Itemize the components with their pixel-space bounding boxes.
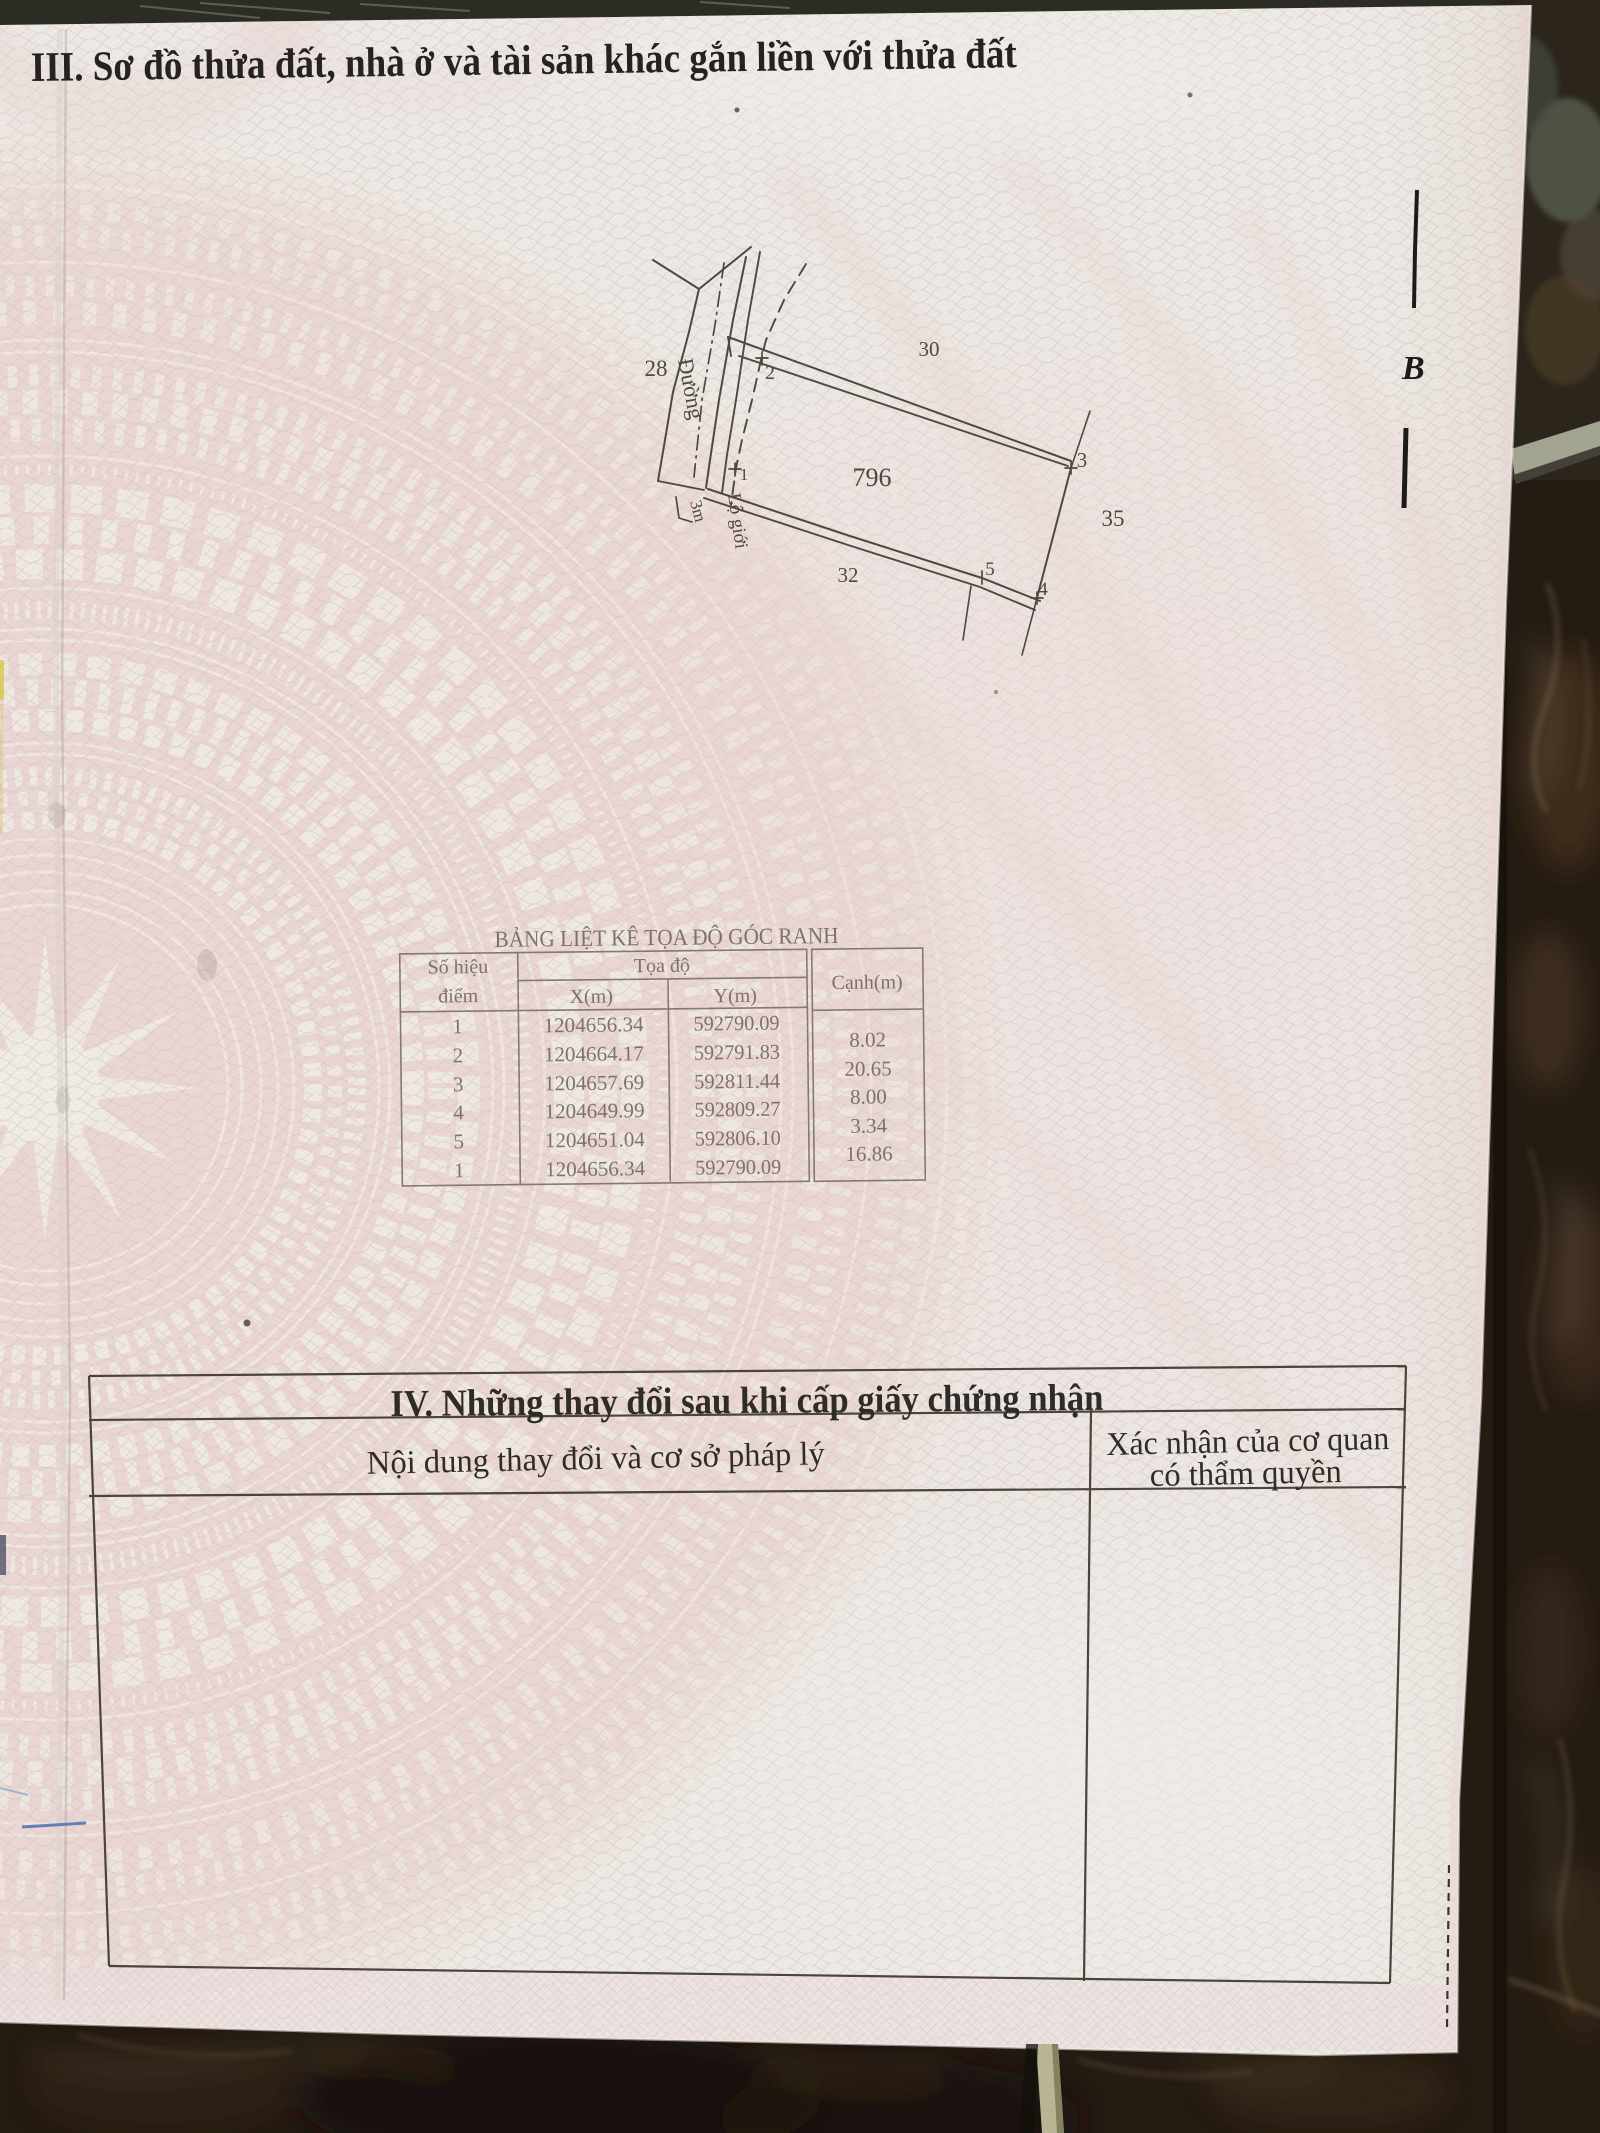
svg-text:có thẩm quyền: có thẩm quyền	[1149, 1454, 1342, 1494]
svg-text:2: 2	[452, 1043, 463, 1067]
svg-text:Y(m): Y(m)	[713, 985, 757, 1007]
svg-text:30: 30	[919, 337, 940, 361]
svg-text:điểm: điểm	[438, 985, 479, 1007]
svg-text:1204656.34: 1204656.34	[545, 1156, 646, 1181]
svg-text:Tọa độ: Tọa độ	[634, 955, 690, 978]
svg-text:8.02: 8.02	[849, 1027, 886, 1051]
svg-text:1: 1	[740, 465, 749, 484]
svg-text:592809.27: 592809.27	[694, 1097, 780, 1122]
svg-text:1: 1	[454, 1158, 465, 1182]
svg-text:592811.44: 592811.44	[694, 1069, 781, 1094]
svg-text:16.86: 16.86	[845, 1141, 893, 1166]
svg-text:592791.83: 592791.83	[694, 1040, 780, 1065]
svg-text:20.65: 20.65	[844, 1056, 892, 1081]
svg-text:592790.09: 592790.09	[695, 1155, 781, 1180]
svg-text:796: 796	[853, 463, 892, 492]
svg-text:592806.10: 592806.10	[695, 1126, 781, 1151]
svg-text:1204657.69: 1204657.69	[544, 1070, 644, 1095]
svg-text:5: 5	[453, 1129, 464, 1153]
svg-text:3.34: 3.34	[850, 1113, 888, 1137]
svg-text:1204651.04: 1204651.04	[545, 1127, 646, 1152]
svg-text:5: 5	[985, 559, 995, 580]
svg-text:592790.09: 592790.09	[693, 1011, 779, 1036]
svg-text:1204649.99: 1204649.99	[544, 1098, 644, 1123]
svg-text:4: 4	[1038, 579, 1048, 600]
svg-text:3: 3	[453, 1072, 464, 1096]
svg-text:IV. Những thay đổi sau khi cấp: IV. Những thay đổi sau khi cấp giấy chứn…	[390, 1377, 1103, 1425]
svg-text:4: 4	[453, 1100, 464, 1124]
svg-text:32: 32	[838, 563, 859, 587]
svg-text:8.00: 8.00	[850, 1084, 887, 1108]
svg-text:BẢNG LIỆT KÊ TỌA ĐỘ GÓC RANH: BẢNG LIỆT KÊ TỌA ĐỘ GÓC RANH	[494, 922, 838, 952]
svg-text:1204656.34: 1204656.34	[543, 1012, 644, 1037]
svg-text:28: 28	[645, 356, 668, 381]
svg-text:Số hiệu: Số hiệu	[427, 956, 488, 979]
svg-text:Cạnh(m): Cạnh(m)	[831, 971, 902, 994]
svg-text:B: B	[1401, 350, 1425, 387]
svg-text:35: 35	[1102, 506, 1125, 531]
svg-text:X(m): X(m)	[569, 986, 613, 1008]
svg-text:1: 1	[452, 1014, 463, 1038]
svg-text:2: 2	[765, 362, 775, 384]
svg-text:1204664.17: 1204664.17	[544, 1041, 644, 1066]
svg-text:3: 3	[1077, 448, 1088, 472]
